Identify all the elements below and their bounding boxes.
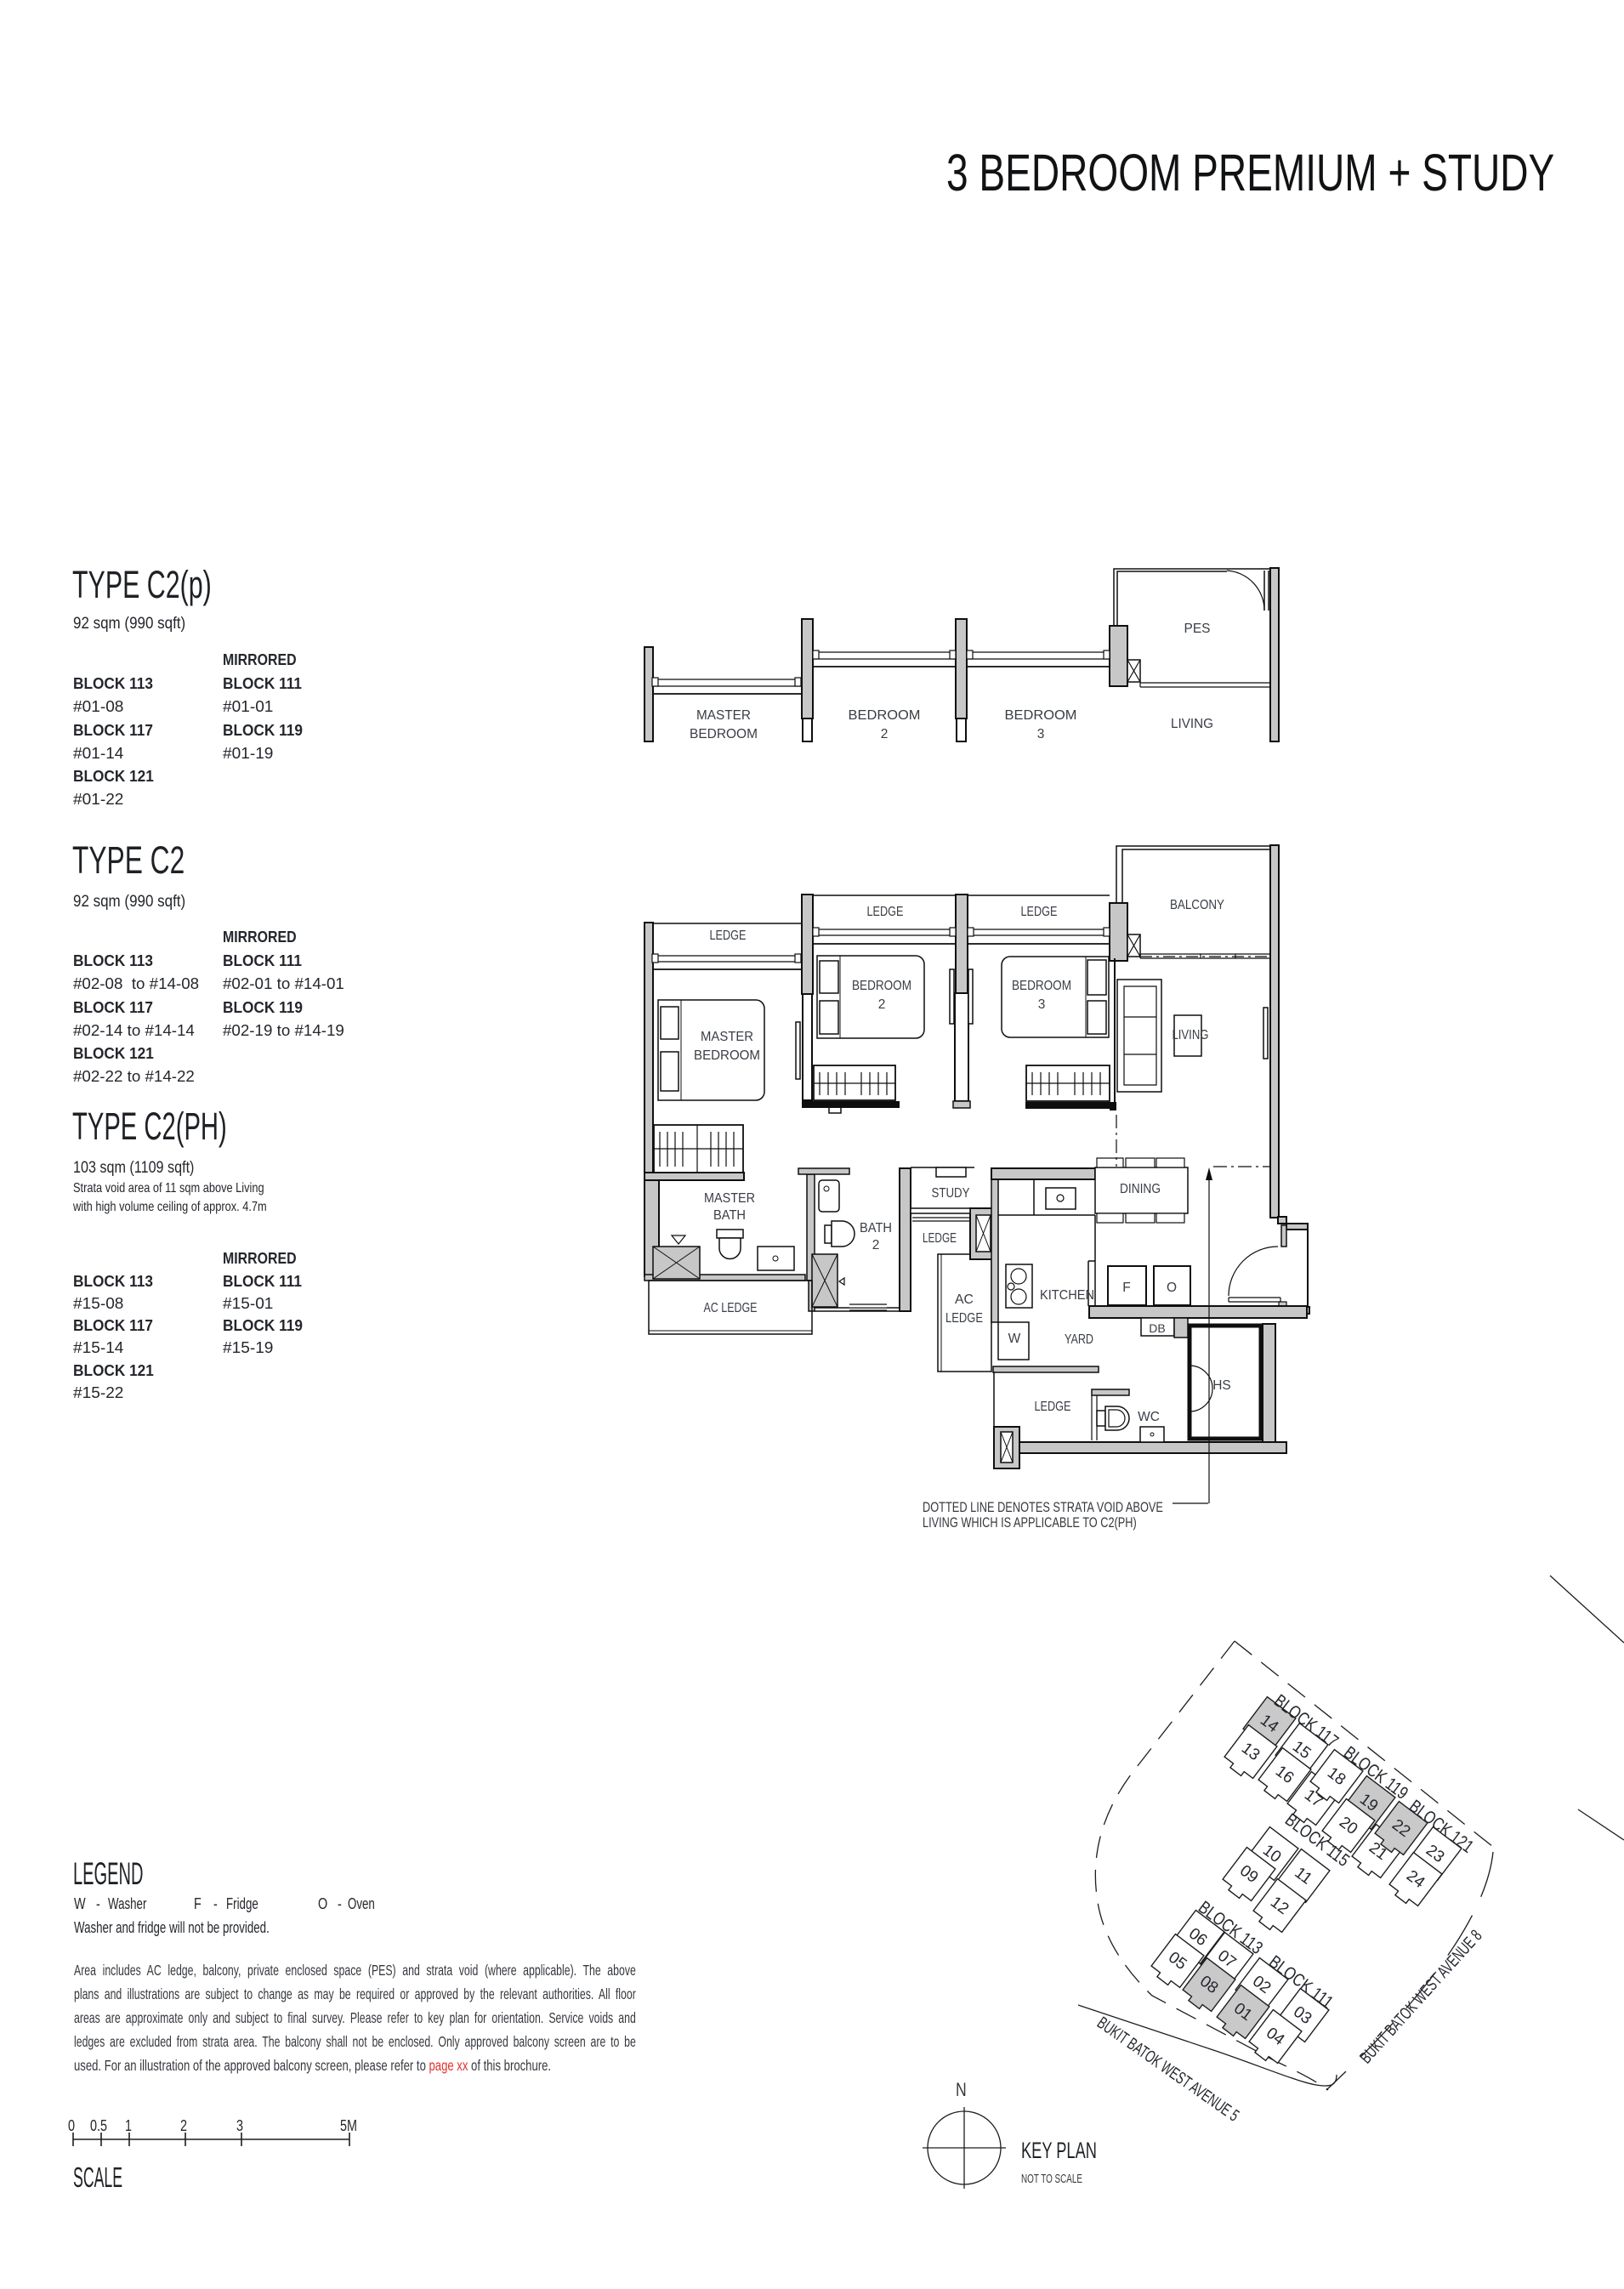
svg-text:HS: HS [1212, 1378, 1231, 1393]
svg-text:2: 2 [878, 997, 886, 1012]
svg-text:3: 3 [1038, 997, 1046, 1012]
svg-text:3: 3 [1037, 727, 1045, 741]
svg-text:DB: DB [1149, 1321, 1165, 1335]
svg-text:YARD: YARD [1065, 1332, 1093, 1347]
svg-text:BATH: BATH [713, 1208, 746, 1223]
svg-text:BEDROOM: BEDROOM [694, 1048, 760, 1063]
svg-text:LEDGE: LEDGE [1021, 905, 1058, 919]
svg-text:WC: WC [1138, 1410, 1160, 1424]
svg-text:MASTER: MASTER [704, 1191, 755, 1206]
svg-text:MASTER: MASTER [701, 1030, 753, 1044]
svg-text:PES: PES [1184, 622, 1211, 636]
svg-text:BEDROOM: BEDROOM [1005, 708, 1077, 723]
svg-text:BEDROOM: BEDROOM [849, 708, 921, 723]
svg-text:BUKIT BATOK WEST AVENUE 5: BUKIT BATOK WEST AVENUE 5 [1093, 2014, 1242, 2126]
svg-text:LEDGE: LEDGE [945, 1311, 983, 1326]
svg-text:F: F [1122, 1281, 1130, 1295]
svg-text:O: O [1167, 1281, 1177, 1295]
svg-text:BEDROOM: BEDROOM [852, 979, 911, 993]
svg-text:STUDY: STUDY [932, 1186, 970, 1201]
svg-text:LEDGE: LEDGE [710, 929, 747, 943]
svg-text:LEDGE: LEDGE [923, 1231, 957, 1246]
svg-text:LEDGE: LEDGE [1035, 1400, 1071, 1414]
svg-text:2: 2 [881, 727, 889, 741]
svg-text:BALCONY: BALCONY [1170, 898, 1224, 912]
svg-text:2: 2 [872, 1238, 880, 1252]
svg-text:BUKIT BATOK WEST AVENUE 8: BUKIT BATOK WEST AVENUE 8 [1356, 1927, 1485, 2068]
svg-text:LIVING: LIVING [1171, 717, 1213, 731]
svg-text:DINING: DINING [1120, 1182, 1161, 1196]
svg-text:AC: AC [955, 1292, 974, 1307]
svg-text:W: W [1008, 1332, 1021, 1346]
svg-text:AC LEDGE: AC LEDGE [704, 1301, 758, 1315]
svg-text:LIVING: LIVING [1173, 1028, 1209, 1042]
svg-text:KITCHEN: KITCHEN [1040, 1288, 1094, 1303]
svg-text:BEDROOM: BEDROOM [690, 727, 758, 741]
svg-text:LEDGE: LEDGE [867, 905, 904, 919]
svg-text:MASTER: MASTER [696, 708, 751, 723]
svg-text:BATH: BATH [860, 1221, 892, 1235]
svg-text:BEDROOM: BEDROOM [1012, 979, 1071, 993]
